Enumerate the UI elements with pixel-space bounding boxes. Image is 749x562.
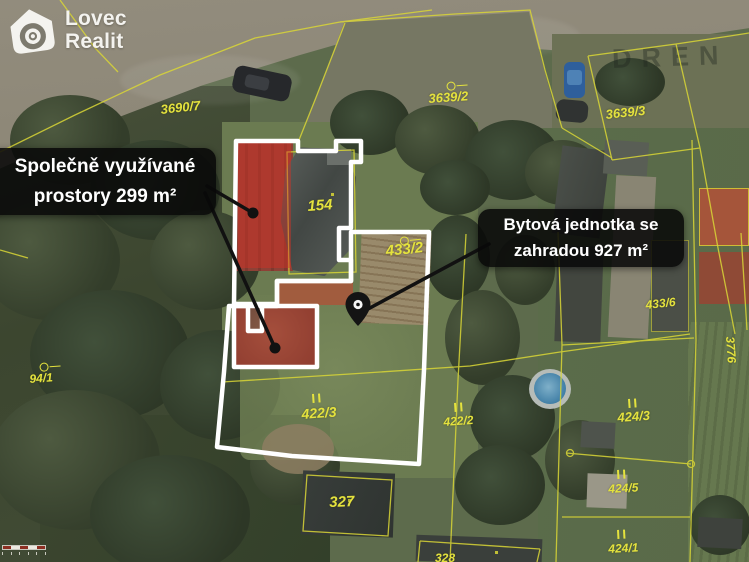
parked-car-dark — [555, 99, 589, 124]
car-roof — [567, 70, 582, 85]
dark-roof-building-328 — [416, 535, 543, 562]
swimming-pool — [534, 373, 566, 404]
orange-roof-house — [699, 252, 749, 304]
bare-soil-patch — [358, 231, 431, 325]
tree-canopy — [420, 160, 490, 215]
roof-dormer — [327, 149, 351, 165]
logo-house-icon — [5, 3, 59, 57]
terracotta-roof — [277, 279, 353, 305]
map-watermark-text: DREN — [611, 40, 729, 75]
tree-canopy — [445, 290, 520, 385]
tree-canopy — [455, 445, 545, 525]
logo-line2: Realit — [65, 30, 127, 53]
light-roof-shed — [586, 473, 627, 508]
logo: Lovec Realit — [8, 6, 127, 54]
aerial-map: DREN — [0, 0, 749, 562]
scale-bar-segment — [20, 546, 28, 549]
callout-line: Společně využívané — [0, 152, 210, 181]
logo-wordmark: Lovec Realit — [65, 7, 127, 53]
scale-bar-segment — [11, 546, 19, 549]
outbuilding-roof — [233, 305, 319, 368]
callout-line: Bytová jednotka se — [478, 212, 684, 238]
bare-soil-patch — [262, 424, 334, 474]
shared-spaces-callout: Společně využívané prostory 299 m² — [0, 148, 216, 215]
gray-roof-shed — [580, 421, 615, 449]
map-scale-bar — [2, 545, 46, 550]
scale-bar-ticks — [2, 552, 46, 555]
housing-unit-callout: Bytová jednotka se zahradou 927 m² — [478, 209, 684, 267]
gray-roof-house — [603, 140, 649, 177]
scale-bar-segment — [37, 546, 45, 549]
dark-roof-building-327 — [301, 470, 395, 537]
logo-line1: Lovec — [65, 7, 127, 30]
callout-line: zahradou 927 m² — [478, 238, 684, 264]
orange-roof-house — [699, 188, 749, 246]
gray-roof-shed — [697, 517, 743, 549]
scale-bar-segment — [3, 546, 11, 549]
scale-bar-segment — [28, 546, 36, 549]
callout-line: prostory 299 m² — [0, 182, 210, 211]
